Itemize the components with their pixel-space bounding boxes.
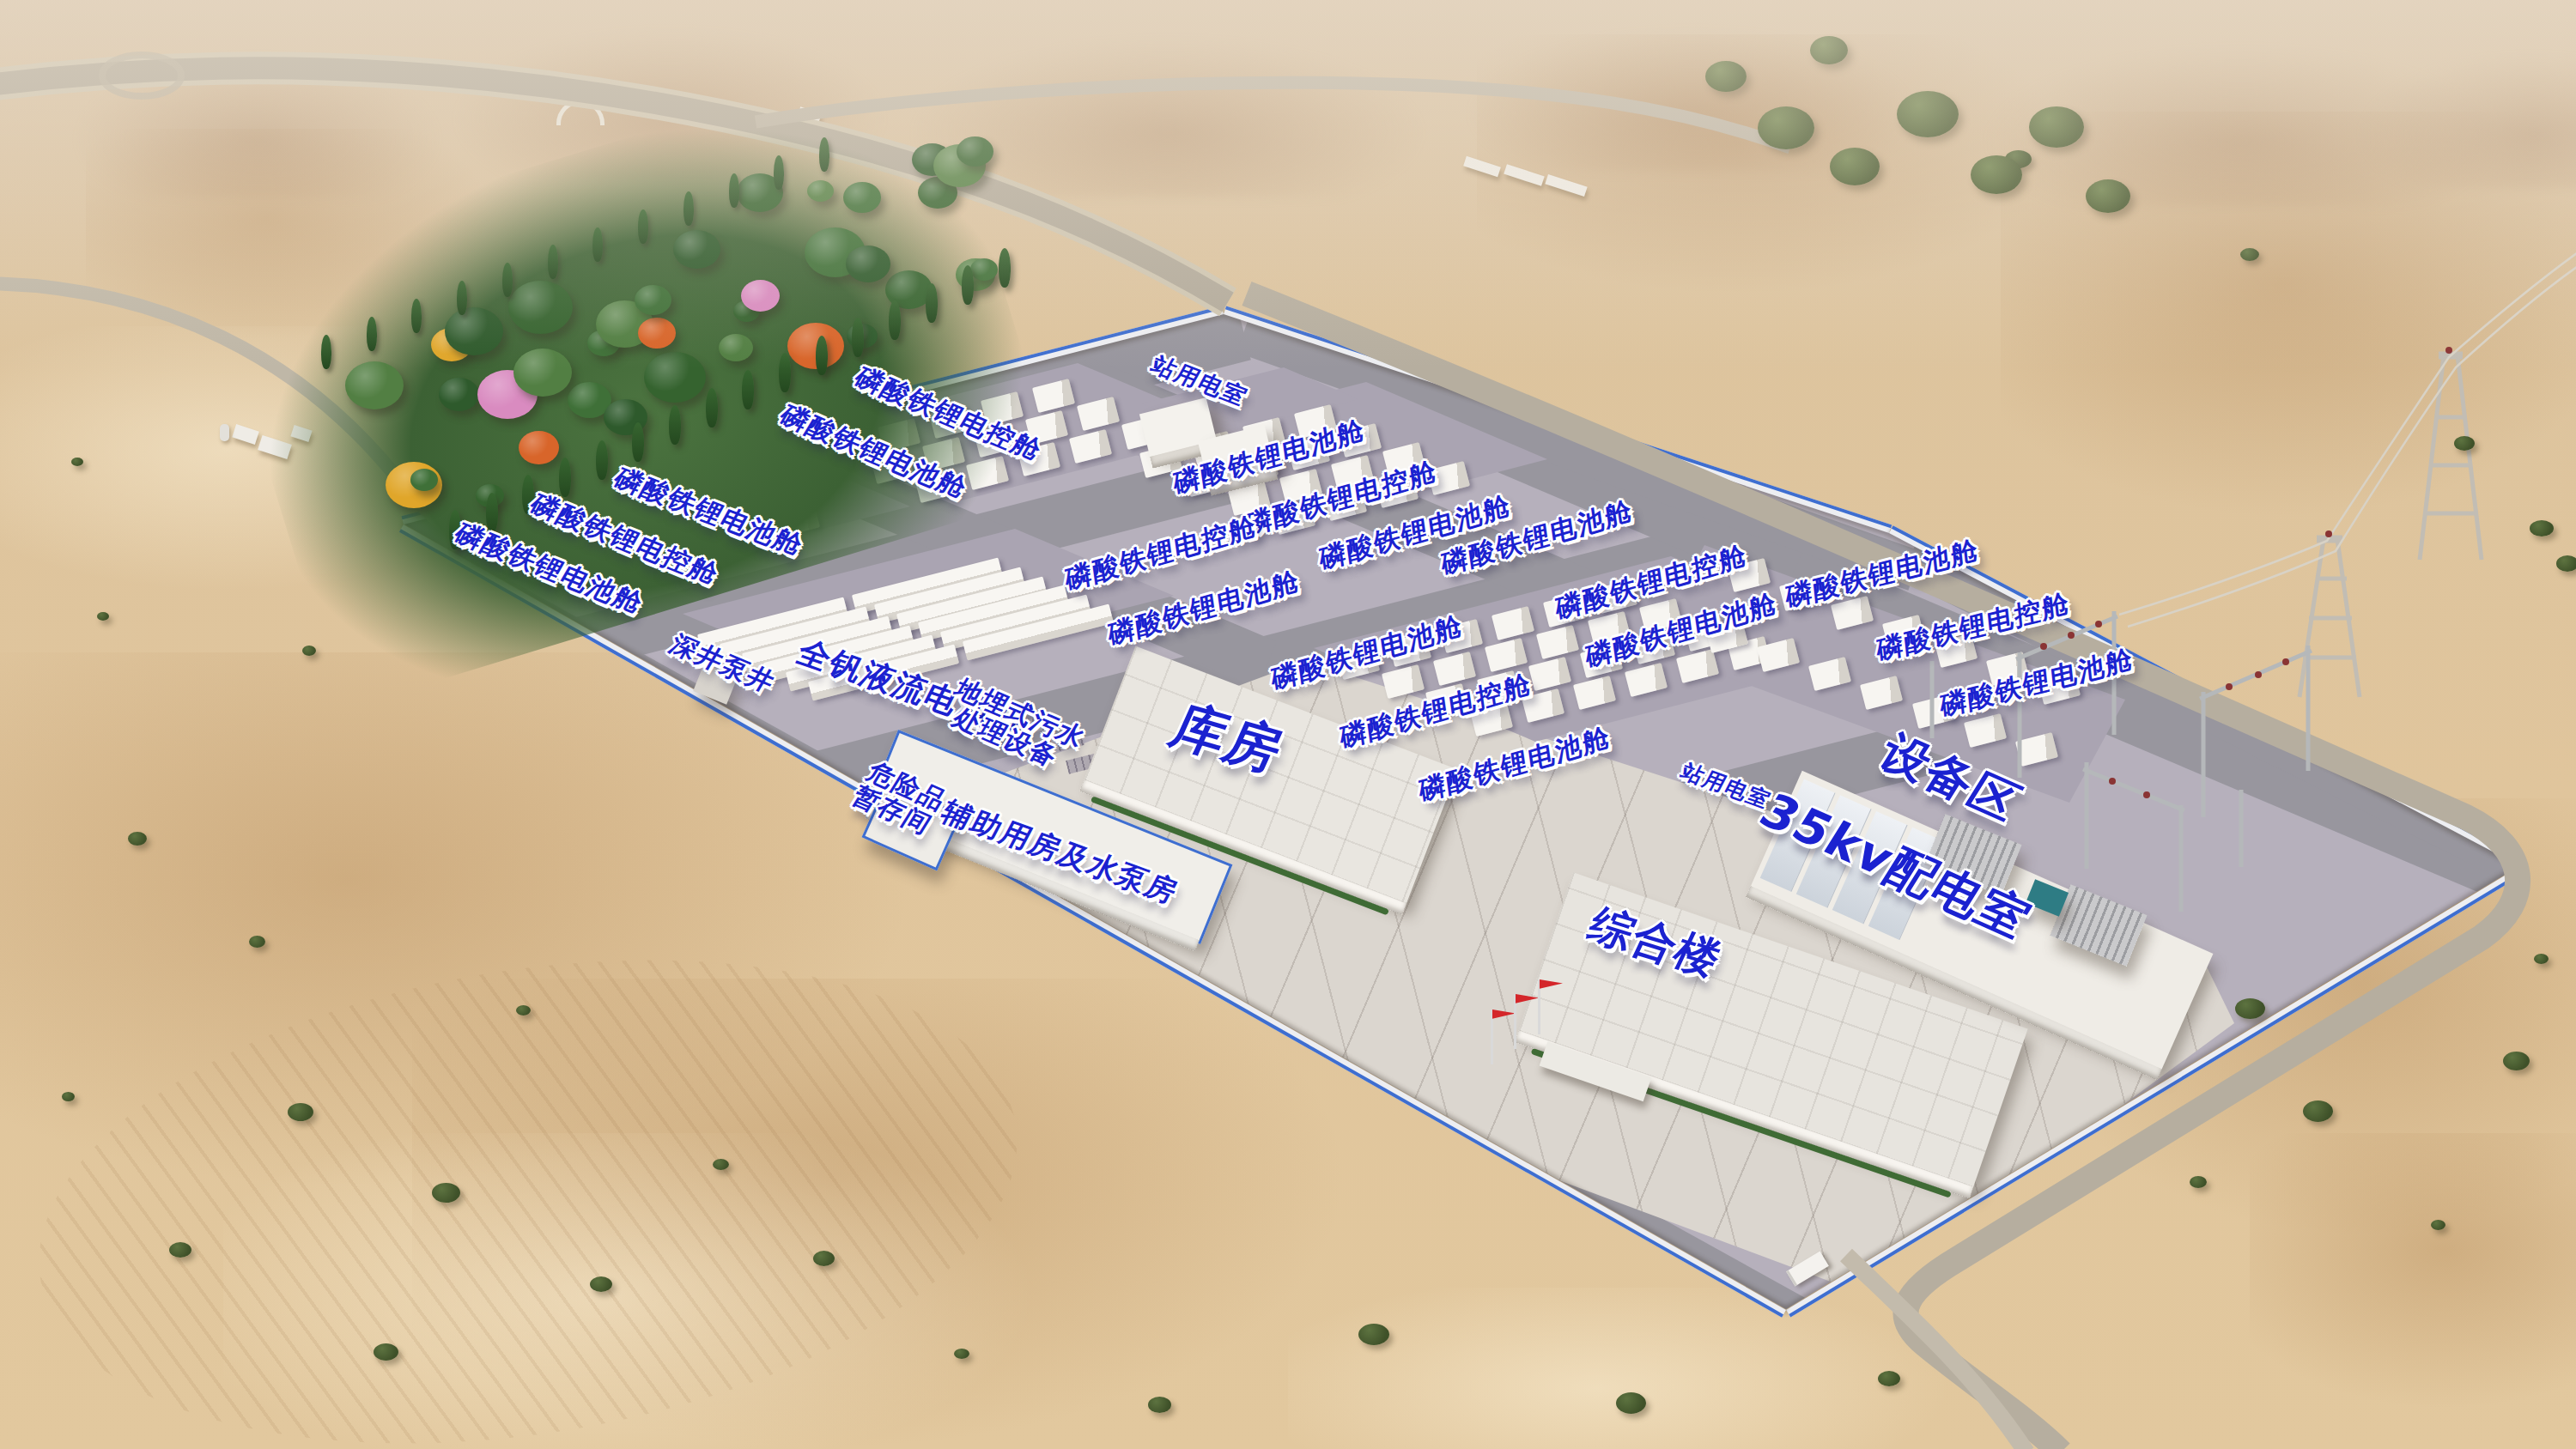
site-label: 库房	[1163, 697, 1292, 779]
site-label: 磷酸铁锂电池舱	[1784, 536, 1980, 612]
site-label: 磷酸铁锂电控舱	[1875, 589, 2071, 665]
site-label: 综合楼	[1582, 902, 1729, 983]
site-label: 磷酸铁锂电池舱	[1418, 723, 1613, 806]
site-label: 磷酸铁锂电池舱	[1939, 645, 2135, 721]
site-label: 危险品 暂存间	[848, 758, 952, 839]
site-label: 站用电室	[1147, 353, 1252, 410]
site-label: 站用电室	[1677, 761, 1775, 813]
site-label: 设备区	[1872, 727, 2030, 828]
site-label: 地埋式污水 处理设备	[936, 675, 1091, 776]
site-label: 深井泵井	[665, 630, 781, 697]
site-label: 磷酸铁锂电池舱	[1270, 611, 1465, 694]
labels-layer: 站用电室磷酸铁锂电池舱磷酸铁锂电控舱磷酸铁锂电池舱磷酸铁锂电控舱磷酸铁锂电池舱磷…	[0, 0, 2576, 1449]
site-label: 磷酸铁锂电控舱	[1339, 670, 1534, 753]
aerial-site-rendering: 站用电室磷酸铁锂电池舱磷酸铁锂电控舱磷酸铁锂电池舱磷酸铁锂电控舱磷酸铁锂电池舱磷…	[0, 0, 2576, 1449]
site-label: 磷酸铁锂电控舱	[1064, 512, 1259, 595]
site-label: 辅助用房及水泵房	[937, 796, 1184, 908]
site-label: 磷酸铁锂电池舱	[1107, 567, 1302, 650]
